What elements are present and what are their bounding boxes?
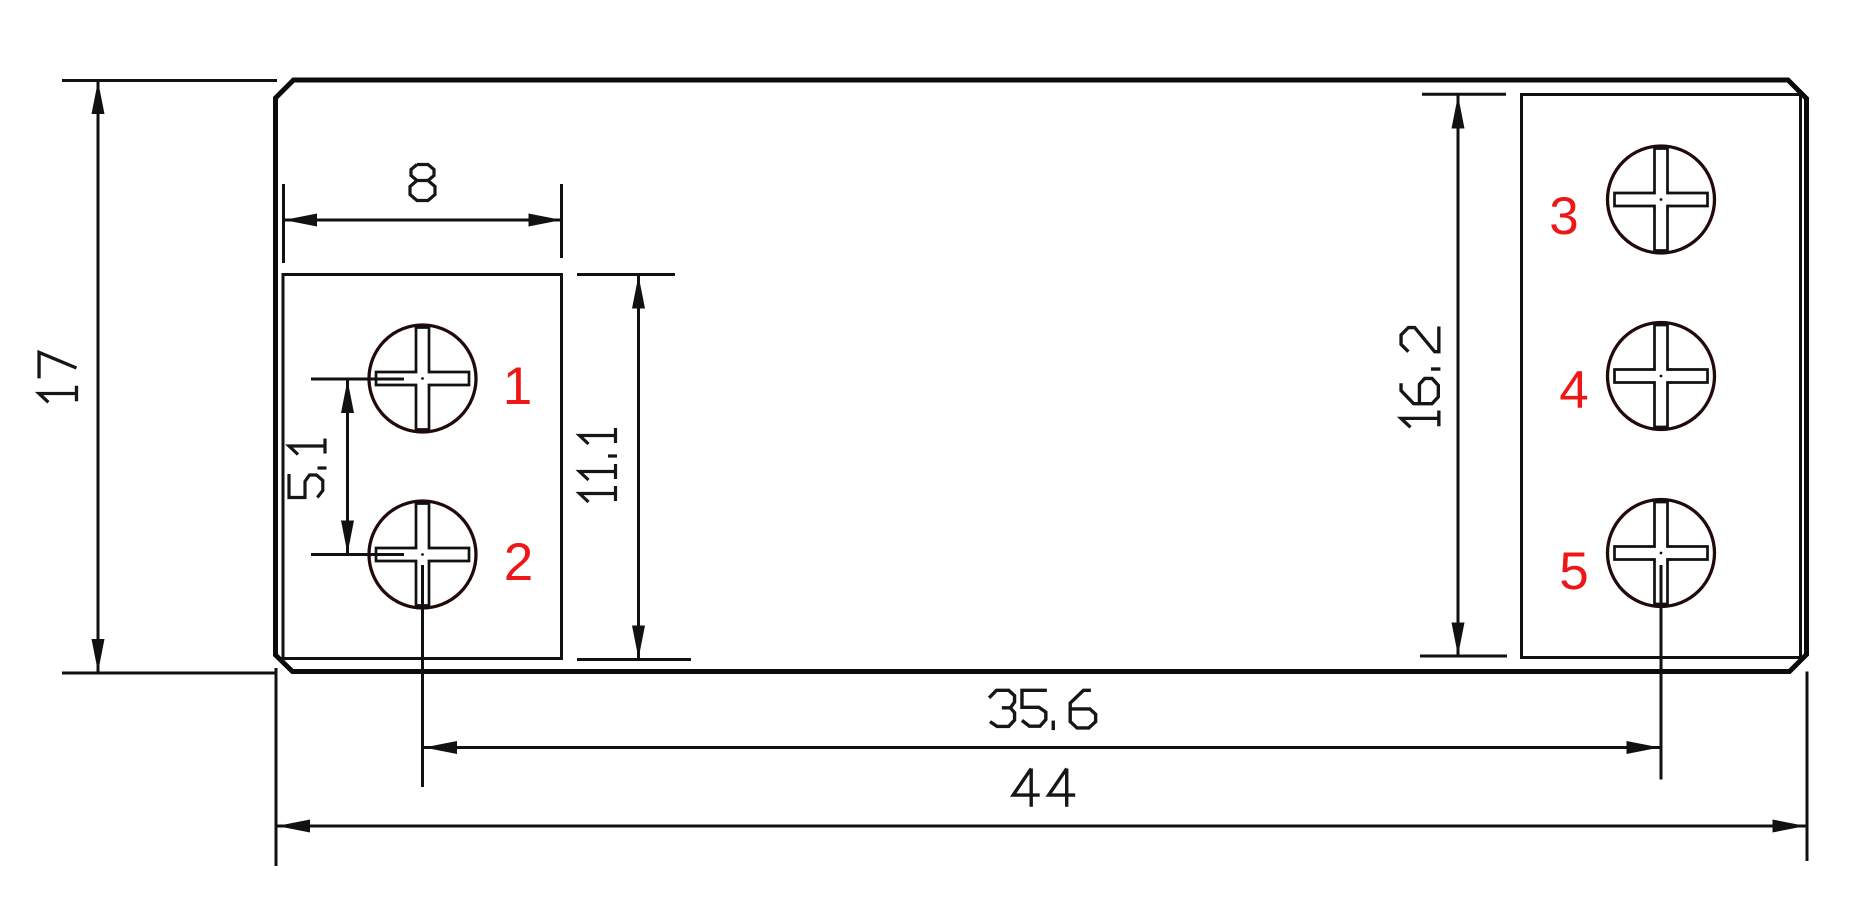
svg-text:2: 2 — [504, 533, 533, 592]
svg-text:1: 1 — [503, 357, 532, 416]
svg-text:5: 5 — [1559, 542, 1588, 601]
svg-text:4: 4 — [1559, 361, 1588, 420]
svg-text:3: 3 — [1549, 187, 1578, 246]
